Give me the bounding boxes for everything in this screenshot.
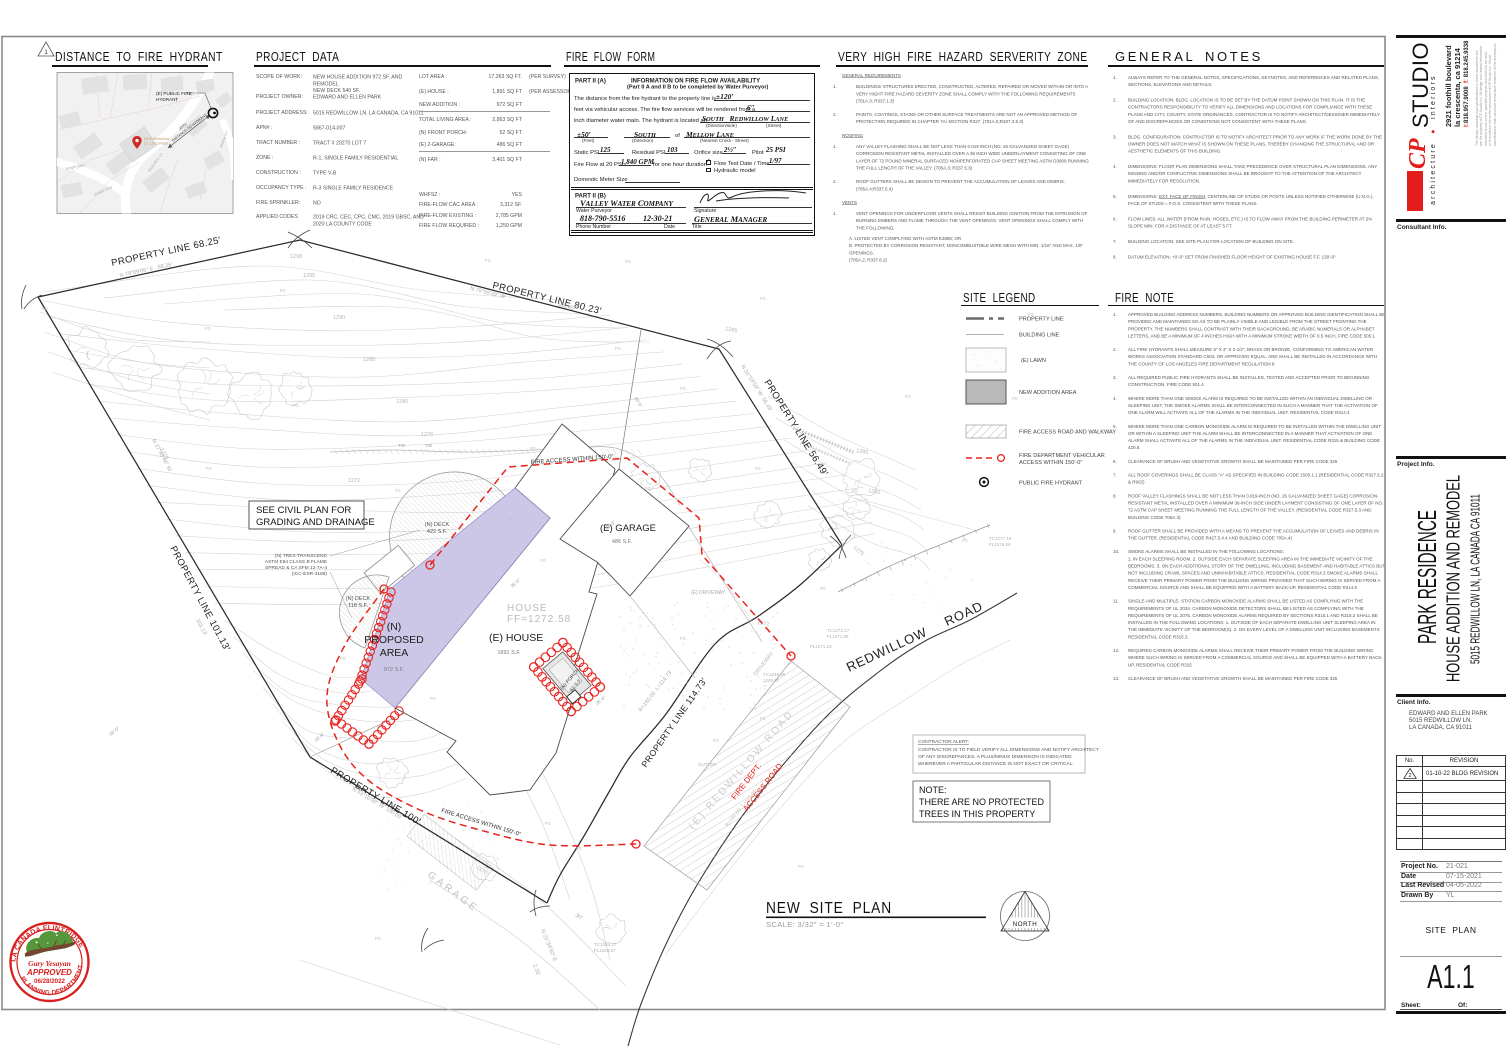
svg-text:TC1264.17: TC1264.17: [594, 942, 617, 947]
svg-text:(N) DECK: (N) DECK: [346, 596, 371, 602]
svg-text:FIRE ACCESS ROAD AND WALKWAY: FIRE ACCESS ROAD AND WALKWAY: [1019, 430, 1116, 436]
svg-text:FG: FG: [540, 558, 546, 563]
svg-text:FL1271.56: FL1271.56: [827, 634, 849, 639]
svg-text:TREES IN THIS PROPERTY: TREES IN THIS PROPERTY: [919, 809, 1035, 819]
svg-text:PROPERTY LINE: PROPERTY LINE: [1019, 317, 1064, 323]
svg-text:FL1276.56: FL1276.56: [989, 542, 1011, 547]
svg-text:SCALE: 3/32″ = 1′-0″: SCALE: 3/32″ = 1′-0″: [766, 920, 843, 929]
svg-text:GRADING AND DRAINAGE: GRADING AND DRAINAGE: [256, 517, 375, 528]
svg-text:1891 S.F.: 1891 S.F.: [497, 650, 521, 656]
svg-text:FG: FG: [713, 738, 719, 743]
svg-text:TC1249.96: TC1249.96: [763, 672, 786, 677]
svg-text:FG: FG: [430, 696, 436, 701]
svg-text:BUILDING LINE: BUILDING LINE: [1019, 333, 1060, 339]
svg-text:NORTH: NORTH: [1013, 921, 1037, 928]
svg-text:AREA: AREA: [380, 647, 409, 659]
svg-text:ASTM E84 CLASS B FLAME: ASTM E84 CLASS B FLAME: [265, 559, 327, 565]
svg-text:FL1271.23: FL1271.23: [810, 644, 832, 649]
svg-text:ACCESS WITHIN 150′-0″: ACCESS WITHIN 150′-0″: [1019, 460, 1082, 466]
svg-text:1272: 1272: [757, 620, 770, 628]
svg-text:118 S.F.: 118 S.F.: [348, 603, 368, 609]
svg-text:FIRE ACCESS WITHIN 150′-0″: FIRE ACCESS WITHIN 150′-0″: [440, 808, 522, 838]
svg-text:WHEREVER A PARTICULAR DISTANCE: WHEREVER A PARTICULAR DISTANCE IS NOT EX…: [918, 761, 1074, 767]
svg-text:(ICC-ESR-3168): (ICC-ESR-3168): [292, 571, 328, 577]
svg-text:(E) LAWN: (E) LAWN: [1021, 358, 1046, 364]
svg-text:(E) GARAGE: (E) GARAGE: [600, 523, 656, 534]
svg-text:APPROVED: APPROVED: [26, 968, 72, 977]
svg-text:FL1263.67: FL1263.67: [594, 948, 616, 953]
svg-text:10'-9": 10'-9": [313, 731, 325, 742]
svg-text:FG: FG: [798, 864, 804, 869]
svg-text:(E) DRIVEWAY: (E) DRIVEWAY: [691, 590, 726, 596]
svg-text:FG: FG: [760, 716, 766, 721]
svg-text:CONTRACTOR IS TO FIELD VERIFY: CONTRACTOR IS TO FIELD VERIFY ALL DIMENS…: [918, 747, 1099, 753]
svg-text:(N): (N): [387, 621, 402, 633]
svg-text:30′: 30′: [574, 913, 583, 922]
svg-text:NEW SITE PLAN: NEW SITE PLAN: [766, 900, 892, 917]
svg-text:FG: FG: [820, 586, 826, 591]
svg-text:FF=1272.58: FF=1272.58: [507, 614, 571, 625]
svg-text:HOUSE: HOUSE: [507, 603, 548, 614]
svg-text:1249.67: 1249.67: [763, 678, 780, 683]
svg-text:R=160.00 L=114.73′: R=160.00 L=114.73′: [638, 670, 674, 714]
svg-text:50'-0": 50'-0": [108, 725, 120, 736]
svg-text:FG: FG: [962, 538, 968, 543]
svg-text:(N) TREX-TRANSCEND: (N) TREX-TRANSCEND: [275, 553, 328, 559]
svg-text:972 S.F.: 972 S.F.: [384, 667, 405, 673]
svg-text:FG: FG: [375, 936, 381, 941]
svg-text:THERE ARE NO PROTECTED: THERE ARE NO PROTECTED: [919, 797, 1045, 807]
svg-text:PROPERTY LINE 101.13′: PROPERTY LINE 101.13′: [167, 544, 232, 653]
svg-text:SPREAD & CA SFM 12-7A-4: SPREAD & CA SFM 12-7A-4: [265, 565, 327, 571]
svg-text:CONTRACTOR ALERT:: CONTRACTOR ALERT:: [918, 739, 969, 745]
svg-text:TC1277.19: TC1277.19: [989, 536, 1012, 541]
svg-text:FG: FG: [509, 517, 515, 522]
svg-text:SEE CIVIL PLAN FOR: SEE CIVIL PLAN FOR: [256, 505, 351, 516]
svg-text:422 S.F.: 422 S.F.: [427, 529, 448, 535]
svg-text:PROPERTY LINE 114.73′: PROPERTY LINE 114.73′: [639, 676, 708, 769]
svg-text:FIRE DEPARTMENT VEHICULAR: FIRE DEPARTMENT VEHICULAR: [1019, 453, 1105, 459]
svg-text:06/28/2022: 06/28/2022: [34, 978, 66, 985]
svg-text:FG: FG: [545, 821, 551, 826]
svg-text:Gary Yesayan: Gary Yesayan: [28, 959, 71, 968]
svg-text:NEW ADDITION AREA: NEW ADDITION AREA: [1019, 390, 1077, 396]
svg-text:GUTTER: GUTTER: [698, 762, 717, 767]
svg-text:FG: FG: [576, 846, 582, 851]
svg-text:REDWILLOW ROAD: REDWILLOW ROAD: [844, 598, 985, 675]
svg-text:PROPOSED: PROPOSED: [364, 634, 424, 646]
svg-text:OF ANY DISCREPANCES. A PLUS/M: OF ANY DISCREPANCES. A PLUS/MINUS DIMENS…: [918, 754, 1072, 760]
svg-text:NOTE:: NOTE:: [919, 785, 947, 795]
svg-text:FG: FG: [340, 656, 346, 661]
svg-text:(N) DECK: (N) DECK: [425, 522, 450, 528]
svg-text:PUBLIC FIRE HYDRANT: PUBLIC FIRE HYDRANT: [1019, 481, 1083, 487]
svg-text:(E) HOUSE: (E) HOUSE: [489, 632, 543, 644]
svg-text:FG: FG: [680, 636, 686, 641]
svg-text:1275: 1275: [852, 545, 865, 557]
svg-text:486 S.F.: 486 S.F.: [612, 539, 633, 545]
svg-text:2.31′: 2.31′: [531, 964, 541, 977]
svg-text:TC1272.17: TC1272.17: [827, 628, 850, 633]
